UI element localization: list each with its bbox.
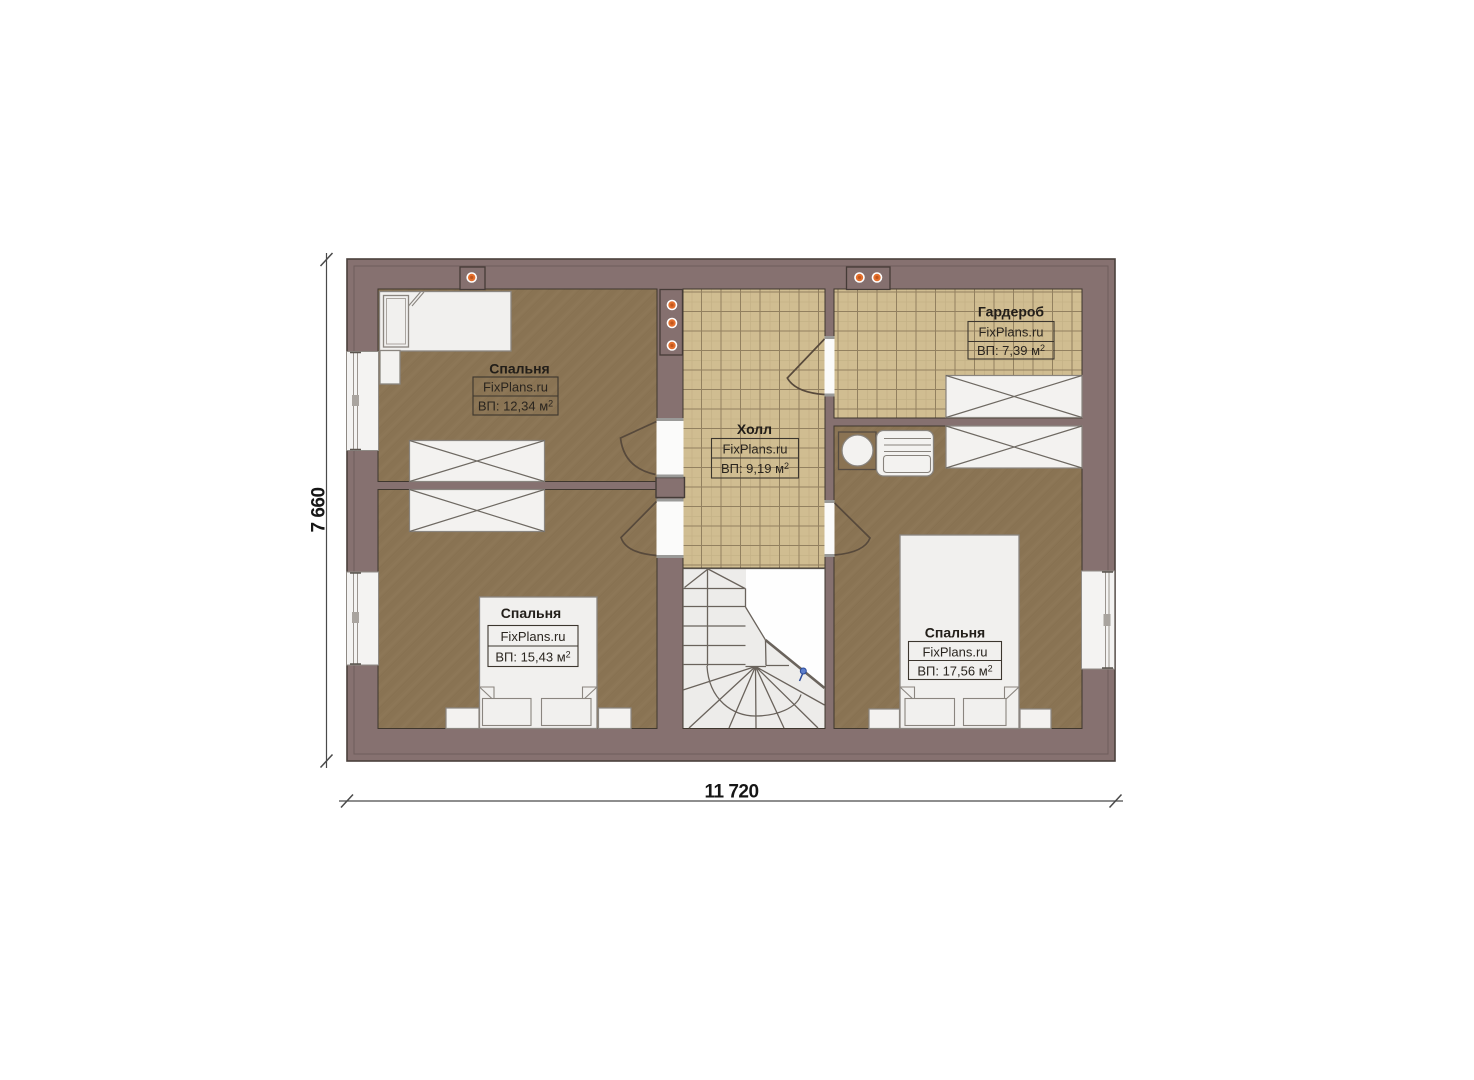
svg-text:FixPlans.ru: FixPlans.ru xyxy=(722,442,787,457)
svg-text:FixPlans.ru: FixPlans.ru xyxy=(922,645,987,660)
svg-text:Спальня: Спальня xyxy=(501,605,561,621)
svg-text:ВП: 17,56 м2: ВП: 17,56 м2 xyxy=(917,664,992,679)
svg-text:ВП: 15,43 м2: ВП: 15,43 м2 xyxy=(495,650,570,665)
svg-text:Спальня: Спальня xyxy=(925,625,985,641)
svg-text:Холл: Холл xyxy=(737,421,772,437)
svg-text:ВП: 12,34 м2: ВП: 12,34 м2 xyxy=(478,399,553,414)
svg-text:Спальня: Спальня xyxy=(489,361,549,377)
svg-text:11 720: 11 720 xyxy=(704,782,758,803)
svg-text:FixPlans.ru: FixPlans.ru xyxy=(500,629,565,644)
svg-text:ВП: 7,39 м2: ВП: 7,39 м2 xyxy=(977,343,1045,358)
svg-text:FixPlans.ru: FixPlans.ru xyxy=(483,380,548,395)
svg-text:Гардероб: Гардероб xyxy=(978,304,1045,320)
svg-text:FixPlans.ru: FixPlans.ru xyxy=(978,325,1043,340)
svg-text:ВП: 9,19 м2: ВП: 9,19 м2 xyxy=(721,461,789,476)
svg-text:7 660: 7 660 xyxy=(309,487,330,532)
